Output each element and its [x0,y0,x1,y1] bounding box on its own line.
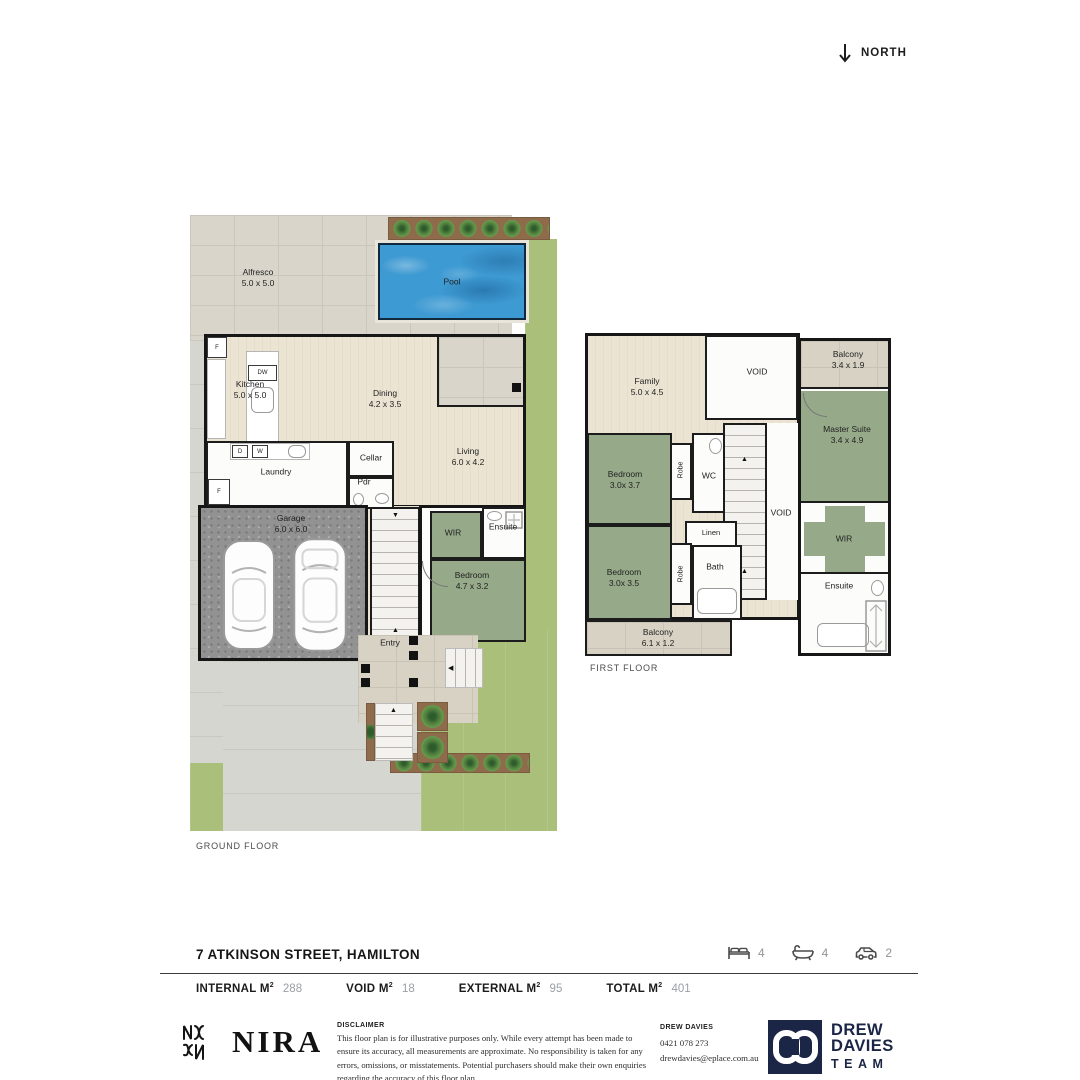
stat-total: TOTAL M2 401 [606,982,690,995]
planter-box-1 [417,702,448,731]
ground-floor-caption: GROUND FLOOR [196,841,279,851]
bath-icon [791,944,815,961]
bed-icon [727,944,751,961]
feature-icons-row: 4 4 2 [727,944,892,961]
bed-feature: 4 [727,944,765,961]
ensuite-basin [487,511,502,521]
patio-post [512,383,521,392]
property-address: 7 ATKINSON STREET, HAMILTON [196,947,420,962]
car-icon [854,944,878,961]
drew-davies-team-icon [768,1020,822,1074]
entry-post [409,636,418,645]
toilet-ensuite-first [871,580,884,596]
room-label-bedroom-ground: Bedroom4.7 x 3.2 [455,570,490,592]
stairs-first-arrow-2: ▲ [741,568,748,575]
lawn-corner [190,763,223,831]
room-label-balcony-bottom: Balcony6.1 x 1.2 [642,627,675,649]
car-1 [218,537,280,653]
north-label: NORTH [861,47,907,59]
steps-arrow-up: ▲ [390,707,397,714]
entry-post [409,651,418,660]
wc-toilet [709,438,722,454]
room-label-balcony-top: Balcony3.4 x 1.9 [832,349,865,371]
agent-name: DREW DAVIES [660,1024,758,1031]
room-label-robe2: Robe [676,566,685,583]
kitchen-counter [207,359,226,439]
room-label-dining: Dining4.2 x 3.5 [369,388,402,410]
bath-feature: 4 [791,944,829,961]
car-count: 2 [885,946,892,960]
nira-monogram-icon [180,1022,220,1062]
patio-inset [437,337,523,407]
disclaimer-body: This floor plan is for illustrative purp… [337,1032,657,1080]
bathtub-first [697,588,737,614]
entry-post [409,678,418,687]
bed-count: 4 [758,946,765,960]
room-label-family: Family5.0 x 4.5 [631,376,664,398]
stat-internal: INTERNAL M2 288 [196,982,302,995]
ground-floor-plan: F DW D W F ▼ ▲ [190,215,557,831]
room-label-bedroom1: Bedroom3.0x 3.7 [608,469,643,491]
north-arrow-icon [838,42,852,64]
room-label-pool: Pool [443,276,460,287]
car-feature: 2 [854,944,892,961]
powder-basin [375,493,389,504]
room-label-entry: Entry [380,637,400,648]
disclaimer-block: DISCLAIMER This floor plan is for illust… [337,1022,657,1080]
room-label-garage: Garage6.0 x 6.0 [275,513,308,535]
shower-first [865,600,887,652]
car-2 [288,535,352,655]
room-label-ensuite-first: Ensuite [825,580,853,591]
washer-chip: W [252,445,268,458]
bath-count: 4 [822,946,829,960]
fridge-chip: F [207,337,227,358]
floorplan-page: NORTH F DW D W F [0,0,1080,1080]
laundry-sink [288,445,306,458]
stat-void: VOID M2 18 [346,982,415,995]
nira-brand: NIRA [180,1022,323,1062]
stairs-down-arrow: ▼ [392,512,399,519]
room-label-living: Living6.0 x 4.2 [452,446,485,468]
room-label-pdr: Pdr [357,476,370,487]
hedge-row-top [388,217,550,240]
room-label-bedroom2: Bedroom3.0x 3.5 [607,567,642,589]
agent-block: DREW DAVIES 0421 078 273 drewdavies@epla… [660,1024,758,1067]
bathtub-ensuite-first [817,623,869,647]
room-label-kitchen: Kitchen5.0 x 5.0 [234,379,267,401]
room-label-robe1: Robe [676,462,685,479]
entry-post [361,678,370,687]
team-line3: TEAM [831,1057,894,1071]
planter-box-2 [417,732,448,763]
stairs-up-arrow: ▲ [392,627,399,634]
room-label-alfresco: Alfresco5.0 x 5.0 [242,267,275,289]
first-floor-caption: FIRST FLOOR [590,663,658,673]
room-label-master: Master Suite3.4 x 4.9 [823,424,871,446]
steps-arrow-left: ◀ [448,665,453,672]
entry-post [361,664,370,673]
room-label-ensuite-ground: Ensuite [489,521,517,532]
stairs-ground [370,507,420,641]
room-label-linen: Linen [702,528,720,538]
room-label-wir-ground: WIR [445,527,462,538]
area-stats-row: INTERNAL M2 288 VOID M2 18 EXTERNAL M2 9… [196,982,691,995]
team-logo-block: DREW DAVIES TEAM [768,1020,894,1074]
footer-divider [160,973,918,974]
wall-div [801,572,888,574]
disclaimer-title: DISCLAIMER [337,1022,657,1029]
laundry-fridge-chip: F [208,479,230,505]
room-label-void-top: VOID [747,366,768,377]
stat-external: EXTERNAL M2 95 [459,982,563,995]
planter-strip [366,703,375,761]
dryer-chip: D [232,445,248,458]
team-line2: DAVIES [831,1039,894,1055]
room-label-laundry: Laundry [261,466,292,477]
agent-email: drewdavies@eplace.com.au [660,1051,758,1066]
room-label-void-mid: VOID [771,507,792,518]
room-label-cellar: Cellar [360,452,382,463]
first-floor-plan: ▲ ▲ Family5.0 x 4.5 VOID Balcony3.4 x 1.… [585,330,895,660]
nira-wordmark: NIRA [232,1024,323,1060]
room-label-wc: WC [702,470,716,481]
room-label-wir-first: WIR [836,533,853,544]
room-label-bath: Bath [706,561,724,572]
stairs-first-arrow-1: ▲ [741,456,748,463]
agent-phone: 0421 078 273 [660,1036,758,1051]
north-indicator: NORTH [838,42,907,64]
